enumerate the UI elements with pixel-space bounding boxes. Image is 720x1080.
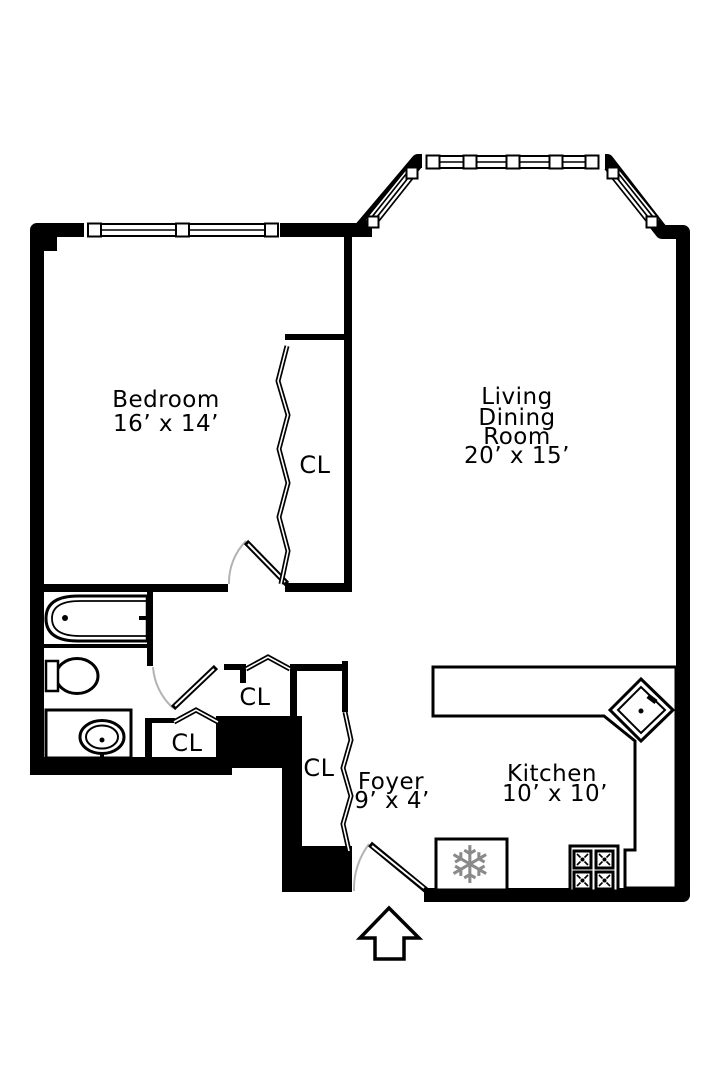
door-swing-arc	[153, 667, 173, 708]
entry-door	[354, 844, 427, 891]
burner-icon	[596, 872, 613, 889]
wall-upper-closet-right	[290, 664, 297, 718]
door-swing-arc	[354, 844, 369, 891]
wall-divider	[344, 237, 352, 592]
bedroom-door	[229, 541, 287, 584]
wall-foyer-closet-right	[342, 661, 348, 712]
hall-closet-lower-label: CL	[171, 729, 202, 757]
living-dims: 20’ x 15’	[464, 443, 570, 469]
bathtub	[46, 596, 147, 641]
bedroom-window	[84, 222, 280, 238]
refrigerator: ❄	[436, 836, 507, 896]
hall-closet-upper-door	[246, 657, 290, 669]
door-swing-arc	[229, 541, 246, 584]
wall-hall-bottom	[290, 664, 348, 671]
foyer-dims: 9’ x 4’	[354, 788, 430, 814]
wall-lower-closet-jamb	[145, 718, 152, 757]
foyer-closet-label: CL	[303, 754, 334, 782]
drain-icon	[62, 615, 68, 621]
wall-lower-closet-jamb-top	[145, 718, 175, 723]
bedroom-closet-label: CL	[299, 451, 330, 479]
wall-bathroom-bottom	[30, 757, 232, 775]
floor-plan-canvas: ❄	[0, 0, 720, 1080]
hall-closet-upper-label: CL	[239, 683, 270, 711]
stove	[570, 846, 618, 891]
burner-icon	[574, 851, 591, 868]
floor-plan: ❄	[0, 0, 720, 1080]
entry-arrow-icon	[360, 908, 419, 959]
wall-chunk-entry	[282, 846, 352, 892]
wall-bedroom-bottom-right	[285, 583, 352, 592]
bathroom-door	[153, 667, 216, 708]
kitchen-dims: 10’ x 10’	[502, 781, 608, 807]
wall-chunk-bar	[282, 716, 302, 848]
foyer-closet-door	[343, 712, 351, 851]
toilet	[46, 659, 98, 694]
burner-icon	[596, 851, 613, 868]
bedroom-label: Bedroom	[112, 387, 220, 413]
wall-left-top	[37, 230, 372, 775]
room-labels: Bedroom 16’ x 14’ Living Dining Room 20’…	[112, 384, 608, 814]
snowflake-icon: ❄	[448, 836, 492, 896]
vanity-sink	[46, 710, 131, 763]
wall-step	[44, 237, 57, 251]
burner-icon	[574, 872, 591, 889]
wall-closet-top	[285, 334, 344, 340]
bedroom-dims: 16’ x 14’	[113, 411, 219, 437]
wall-bedroom-bottom-left	[44, 584, 228, 592]
bedroom-closet-door	[278, 346, 288, 584]
wall-tub-front	[44, 644, 152, 648]
hall-closet-lower-door	[174, 710, 218, 722]
